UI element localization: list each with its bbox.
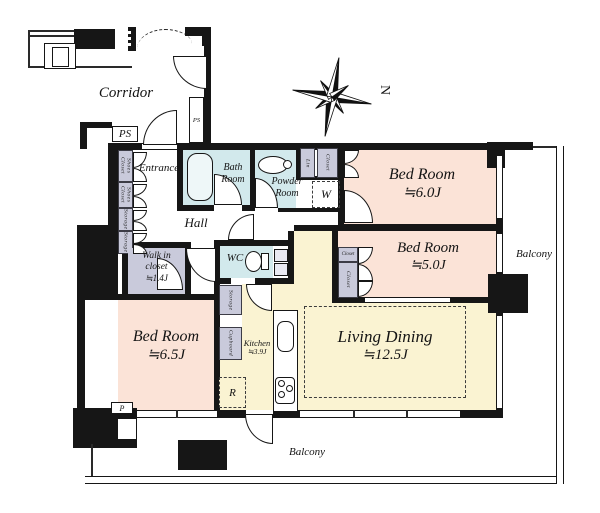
hatch-notch [128, 31, 131, 34]
living-strip-floor [294, 231, 332, 297]
shoes-closet-label: Shoes Closet [120, 183, 132, 207]
living-dining-size: ≒12.5J [295, 347, 475, 365]
wc-text: WC [227, 252, 244, 264]
bedroom-e-size: ≒5.0J [362, 258, 494, 275]
storage-label: Storage [228, 290, 234, 311]
shoes-closet-box: Shoes Closet [118, 150, 133, 182]
pipe-shaft: PS [189, 97, 204, 143]
pillar-mid-right [488, 274, 528, 313]
corridor-wall [204, 97, 211, 143]
closet-label: Closet [345, 271, 351, 288]
compass-rose [288, 53, 376, 141]
stove-burner [278, 391, 285, 398]
powder-bottom-wall [278, 208, 344, 212]
kitchen-label: Kitchen ≒3.9J [236, 338, 278, 360]
top-wall-stub [108, 143, 142, 150]
pillar-top-right-arm [487, 142, 533, 150]
door-swing [245, 414, 273, 444]
floor-plan: PS Shoes [0, 0, 600, 513]
bath-room-label: Bath Room [212, 162, 254, 188]
window [496, 234, 503, 272]
ps-label: PS [119, 128, 131, 140]
storage-box: Storage [219, 285, 242, 315]
shoes-closet-box: Shoes Closet [118, 182, 133, 208]
linen-label: Lin [305, 159, 311, 168]
bath-text-2: Room [212, 174, 254, 186]
pipe-shaft-label: PS [193, 117, 200, 124]
wc-top-wall [214, 240, 293, 246]
door-swing [173, 56, 207, 89]
bedroom-divider-wall [338, 224, 503, 231]
stove-burner [286, 385, 293, 392]
elevator-car [52, 47, 69, 67]
bedroom-sw-size: ≒6.5J [118, 347, 214, 365]
closet-door-swing [133, 184, 147, 196]
left-wall [77, 294, 85, 414]
faucet [283, 160, 292, 169]
linen-box: Lin [300, 148, 315, 178]
walkin-text-1: Walk in [128, 251, 185, 262]
walkin-size: ≒1.4J [128, 273, 185, 284]
pillar-left [77, 225, 110, 300]
entrance-label: Entrance [132, 162, 186, 176]
refrigerator-space: R [219, 377, 246, 408]
bedroom-sw-top-wall [108, 294, 220, 300]
hatch-notch [128, 37, 131, 40]
porch-wall [80, 122, 87, 149]
storage-box: Storage [118, 208, 133, 231]
powder-text-2: Room [262, 188, 312, 200]
powder-room-label: Powder Room [262, 176, 312, 202]
corridor-text: Corridor [99, 85, 153, 101]
walkin-closet-label: Walk in closet ≒1.4J [128, 251, 185, 291]
ps-box: PS [112, 126, 138, 142]
kitchen-sink [277, 321, 294, 352]
bathtub [187, 153, 213, 201]
washer-label: W [321, 187, 331, 202]
balcony-edge-line [91, 444, 93, 476]
window [300, 410, 460, 418]
fridge-label: R [229, 387, 236, 399]
parking-box: P [111, 402, 133, 414]
bath-bottom-wall [183, 205, 214, 211]
closet-label: Closet [342, 252, 355, 257]
hatch-notch [128, 43, 131, 46]
wc-right-wall [288, 231, 294, 284]
stove-burner [278, 380, 285, 387]
balcony-bottom-text: Balcony [289, 446, 325, 458]
unit-top-wall [177, 143, 533, 150]
cupboard-label: Cupboard [228, 330, 234, 356]
door-swing-dashed [137, 29, 165, 49]
balcony-railing-right [556, 146, 564, 484]
bottom-wall [217, 410, 246, 418]
entrance-text: Entrance [139, 162, 179, 174]
living-dining-name: Living Dining [295, 327, 475, 347]
window-tick [406, 410, 408, 418]
north-text: N [377, 85, 392, 95]
closet-box: Closet [338, 247, 358, 262]
bedroom-ne-name: Bed Room [352, 166, 492, 185]
window [365, 297, 450, 303]
wc-label: WC [222, 252, 248, 266]
wc-shelf-box [274, 249, 288, 262]
bedroom-ne-label: Bed Room ≒6.0J [352, 166, 492, 208]
balcony-edge-line [533, 146, 556, 148]
window-tick [353, 410, 355, 418]
kitchen-size: ≒3.9J [236, 348, 278, 357]
parking-label: P [120, 404, 125, 413]
closet-box: Closet [317, 148, 338, 178]
washing-machine-space: W [312, 181, 340, 208]
bedroom-sw-label: Bed Room ≒6.5J [118, 328, 214, 370]
corridor-line [28, 30, 30, 68]
bedroom-e-name: Bed Room [362, 240, 494, 258]
walkin-text-2: closet [128, 262, 185, 273]
closet-door-swing [133, 196, 147, 208]
balcony-bottom-label: Balcony [280, 446, 334, 460]
living-dining-label: Living Dining ≒12.5J [295, 327, 475, 373]
hall-label: Hall [176, 215, 216, 232]
balcony-railing-bottom [85, 476, 564, 484]
corridor-line [28, 35, 74, 37]
closet-label: Closet [325, 154, 331, 171]
powder-text-1: Powder [262, 176, 312, 188]
window [496, 316, 503, 408]
bath-bottom-wall [242, 205, 255, 211]
storage-label: Storage [123, 209, 129, 230]
entrance-bath-wall [177, 143, 183, 211]
pillar-notch [117, 418, 137, 440]
bedroom-sw-name: Bed Room [118, 328, 214, 347]
hall-text: Hall [184, 215, 207, 230]
pillar-bottom-mid [178, 440, 227, 470]
bedroom-ne-size: ≒6.0J [352, 185, 492, 203]
door-swing [143, 110, 177, 145]
corridor-line [28, 30, 74, 32]
window [496, 156, 503, 218]
corridor-label: Corridor [80, 85, 172, 103]
wc-shelf-box [274, 263, 288, 276]
window-tick [176, 410, 178, 418]
shoes-closet-label: Shoes Closet [120, 151, 132, 181]
balcony-right-label: Balcony [508, 248, 560, 262]
balcony-right-text: Balcony [516, 248, 552, 260]
closet-box: Closet [338, 262, 358, 298]
door-swing [228, 214, 254, 240]
shaft-block [74, 29, 115, 49]
closet-door-swing [133, 210, 147, 221]
bath-text-1: Bath [212, 162, 254, 174]
toilet-tank [261, 253, 269, 270]
bedroom-e-label: Bed Room ≒5.0J [362, 240, 494, 278]
north-label: N [372, 80, 392, 100]
closet-door-swing [133, 221, 147, 231]
